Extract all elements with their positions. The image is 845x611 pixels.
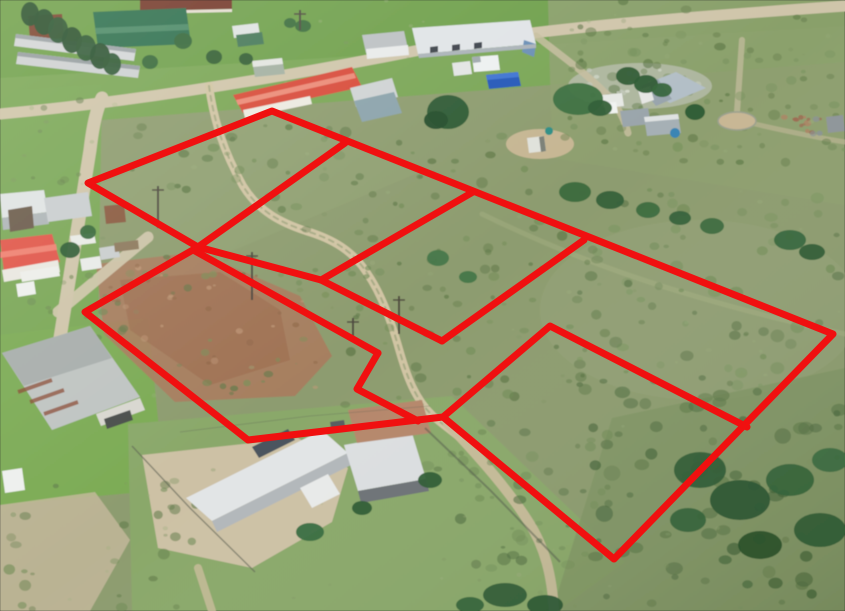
lighting-wash [0, 0, 845, 611]
aerial-photo [0, 0, 845, 611]
aerial-photo-frame [0, 0, 845, 611]
photo-layers [0, 0, 845, 611]
